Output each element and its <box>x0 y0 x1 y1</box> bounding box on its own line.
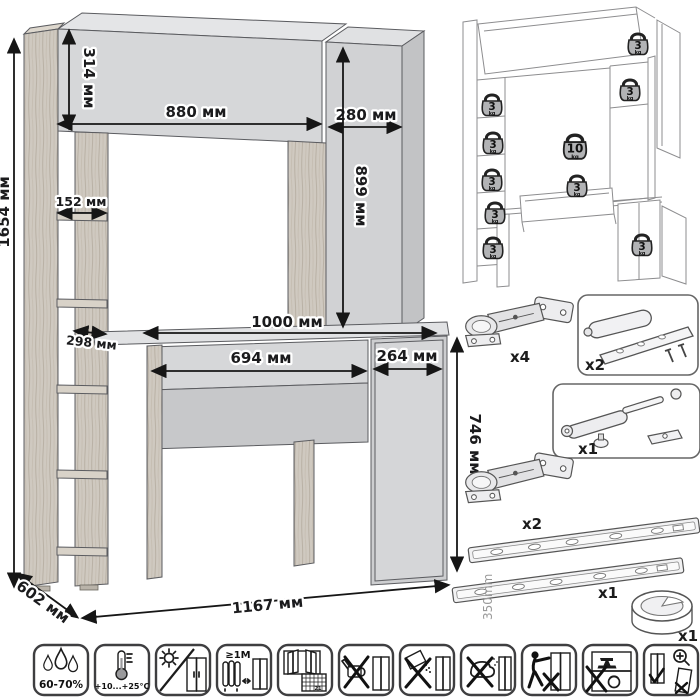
cabinet-icon <box>436 657 450 690</box>
care-icons-row: 60-70% +10...+25°C <box>34 645 698 695</box>
desk-left-side <box>147 345 162 579</box>
cabinet-icon <box>592 652 631 691</box>
care-icon-no-wet-cleaning <box>339 645 393 695</box>
spec-sheet: 1654 мм 314 мм 880 мм 280 мм 899 мм 152 … <box>0 0 700 700</box>
svg-text:kg: kg <box>489 111 496 117</box>
slide-length-label: 350mm <box>481 574 495 620</box>
dim-hutch-width-label: 880 мм <box>165 103 226 121</box>
gas-lift-item: x1 <box>553 384 700 458</box>
svg-text:kg: kg <box>635 50 642 56</box>
svg-text:kg: kg <box>627 96 634 102</box>
grommet-qty: x1 <box>678 627 698 645</box>
right-column-side <box>402 31 424 333</box>
hutch-right-upright <box>288 141 326 333</box>
svg-text:kg: kg <box>490 254 497 260</box>
cabinet-ok-icon <box>650 654 664 683</box>
svg-text:kg: kg <box>574 192 581 198</box>
care-icon-no-direct-sunlight <box>156 645 210 695</box>
cabinet-icon <box>499 657 511 690</box>
dim-shelf-width-label: 152 мм <box>56 194 107 209</box>
care-icon-do-not-drag <box>522 645 576 695</box>
svg-text:60-70%: 60-70% <box>39 679 84 691</box>
open-window-icon <box>284 650 320 674</box>
desk-inner-upright <box>294 440 314 566</box>
cabinet-icon <box>187 658 206 691</box>
base-cabinet-door <box>375 340 443 581</box>
damper-qty: x2 <box>585 356 605 374</box>
dim-door-width-label: 264 мм <box>376 347 437 365</box>
care-icon-check-stability <box>644 645 698 695</box>
cabinet-tipping-icon <box>675 668 691 693</box>
dim-desk-height-label: 746 мм <box>466 413 484 474</box>
svg-text:+10...+25°C: +10...+25°C <box>95 682 150 691</box>
care-icon-heat-distance: ≥1M <box>217 645 271 695</box>
dim-total-height-label: 1654 мм <box>0 176 13 248</box>
svg-text:kg: kg <box>490 149 497 155</box>
dim-right-column-width-label: 280 мм <box>335 106 396 124</box>
care-icon-humidity: 60-70% <box>34 645 88 695</box>
radiator-icon <box>223 661 240 691</box>
under-drawer-panel <box>150 383 368 449</box>
care-icon-ventilation: 21 <box>278 645 332 695</box>
dim-hutch-height-label: 314 мм <box>80 47 98 108</box>
svg-text:21: 21 <box>315 686 322 692</box>
foot-ladder <box>80 585 98 590</box>
hinge-bottom-qty: x2 <box>522 515 542 533</box>
dim-drawer-width-label: 694 мм <box>230 349 291 367</box>
drawer-slides-qty: x1 <box>598 584 618 602</box>
svg-text:kg: kg <box>489 186 496 192</box>
damper-item: x2 <box>578 295 698 375</box>
svg-text:≥1M: ≥1M <box>225 650 250 661</box>
care-icon-do-not-overload <box>583 645 637 695</box>
gas-lift-qty: x1 <box>578 440 598 458</box>
cabinet-icon <box>253 659 267 689</box>
dim-desktop-width-label: 1000 мм <box>251 313 323 331</box>
hinge-top-qty: x4 <box>510 348 530 366</box>
care-icon-no-abrasive <box>400 645 454 695</box>
svg-text:kg: kg <box>571 154 579 160</box>
left-side-panel <box>24 29 58 587</box>
care-icon-temperature: +10...+25°C <box>95 645 150 695</box>
svg-text:kg: kg <box>492 219 499 225</box>
dim-right-column-width: 280 мм <box>330 106 400 127</box>
care-icon-no-solvents <box>461 645 515 695</box>
svg-text:kg: kg <box>639 251 646 257</box>
cabinet-icon <box>373 657 389 690</box>
calendar-icon: 21 <box>302 674 326 692</box>
dim-right-column-height-label: 899 мм <box>352 165 370 226</box>
